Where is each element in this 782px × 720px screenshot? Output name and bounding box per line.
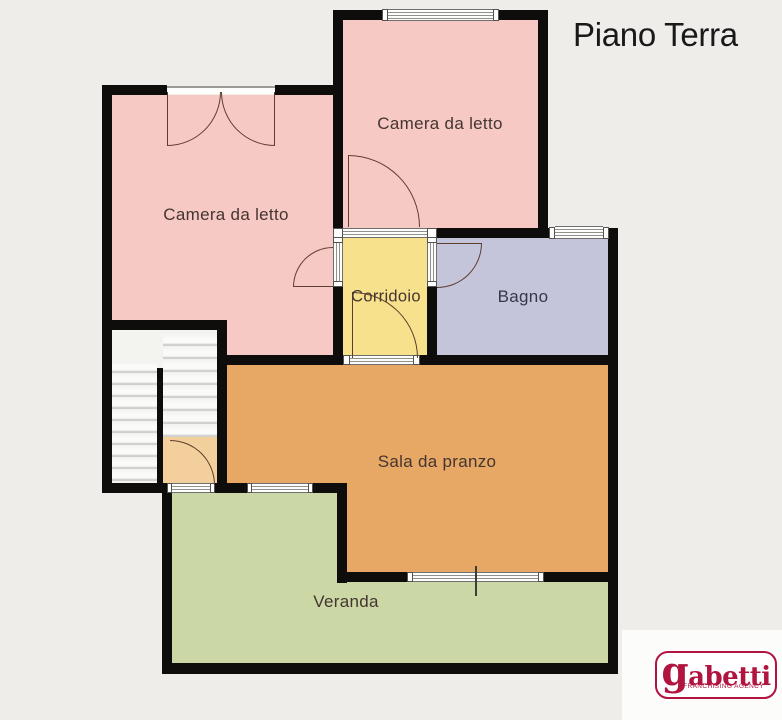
room-dining-fill <box>347 483 608 572</box>
corridor-left-doorframe <box>333 243 343 281</box>
wall <box>217 355 343 365</box>
window-cap <box>247 483 252 493</box>
bathroom-doorframe <box>427 243 437 281</box>
window-cap <box>549 227 555 239</box>
wall <box>102 330 112 492</box>
wall <box>544 572 618 582</box>
window-cap <box>603 227 609 239</box>
stairs-right-flight <box>163 333 217 437</box>
wall <box>333 10 343 228</box>
doorframe-cap <box>333 237 343 243</box>
wall <box>102 483 167 493</box>
window-cap <box>382 9 388 21</box>
brand-tagline: FRANCHISING AGENCY <box>683 683 764 690</box>
corridor-top-doorframe <box>343 228 427 238</box>
wall <box>337 572 413 582</box>
wall <box>333 287 343 355</box>
wall <box>538 10 548 238</box>
wall <box>275 85 343 95</box>
room-veranda-fill <box>172 493 337 663</box>
wall <box>427 287 437 355</box>
wall <box>608 228 618 674</box>
floor-plan: Camera da letto Camera da letto Corridoi… <box>0 0 782 720</box>
room-label-bedroom-left: Camera da letto <box>163 205 288 225</box>
wall <box>215 483 247 493</box>
wall <box>313 483 347 493</box>
doorframe-cap <box>343 355 350 365</box>
wall <box>162 483 172 674</box>
window-cap <box>308 483 313 493</box>
wall <box>337 493 347 583</box>
room-label-bedroom-top: Camera da letto <box>377 114 502 134</box>
room-bedroom-left-fill <box>227 320 333 355</box>
window-cap <box>407 572 413 582</box>
doorframe-cap <box>427 281 437 287</box>
doorframe-cap <box>333 281 343 287</box>
room-label-veranda: Veranda <box>313 592 378 612</box>
room-label-corridor: Corridoio <box>351 288 421 307</box>
wall <box>420 355 618 365</box>
window-dining-left <box>252 483 308 493</box>
doorframe-cap <box>427 237 437 243</box>
window-mullion <box>475 566 477 596</box>
logo-panel: gabetti FRANCHISING AGENCY <box>622 630 782 720</box>
wall <box>102 85 112 330</box>
stair-divider-wall <box>157 368 163 483</box>
room-label-bathroom: Bagno <box>498 287 549 307</box>
brand-logo: gabetti FRANCHISING AGENCY <box>655 651 777 699</box>
window-cap <box>493 9 499 21</box>
wall <box>162 663 618 674</box>
window-bedroom-top <box>388 9 493 21</box>
window-cap <box>538 572 544 582</box>
window-bathroom <box>555 226 603 239</box>
wall <box>102 320 227 330</box>
page-title: Piano Terra <box>573 16 738 54</box>
wall <box>217 320 227 493</box>
stairs-left-flight <box>112 361 157 483</box>
room-label-dining: Sala da pranzo <box>378 452 497 472</box>
